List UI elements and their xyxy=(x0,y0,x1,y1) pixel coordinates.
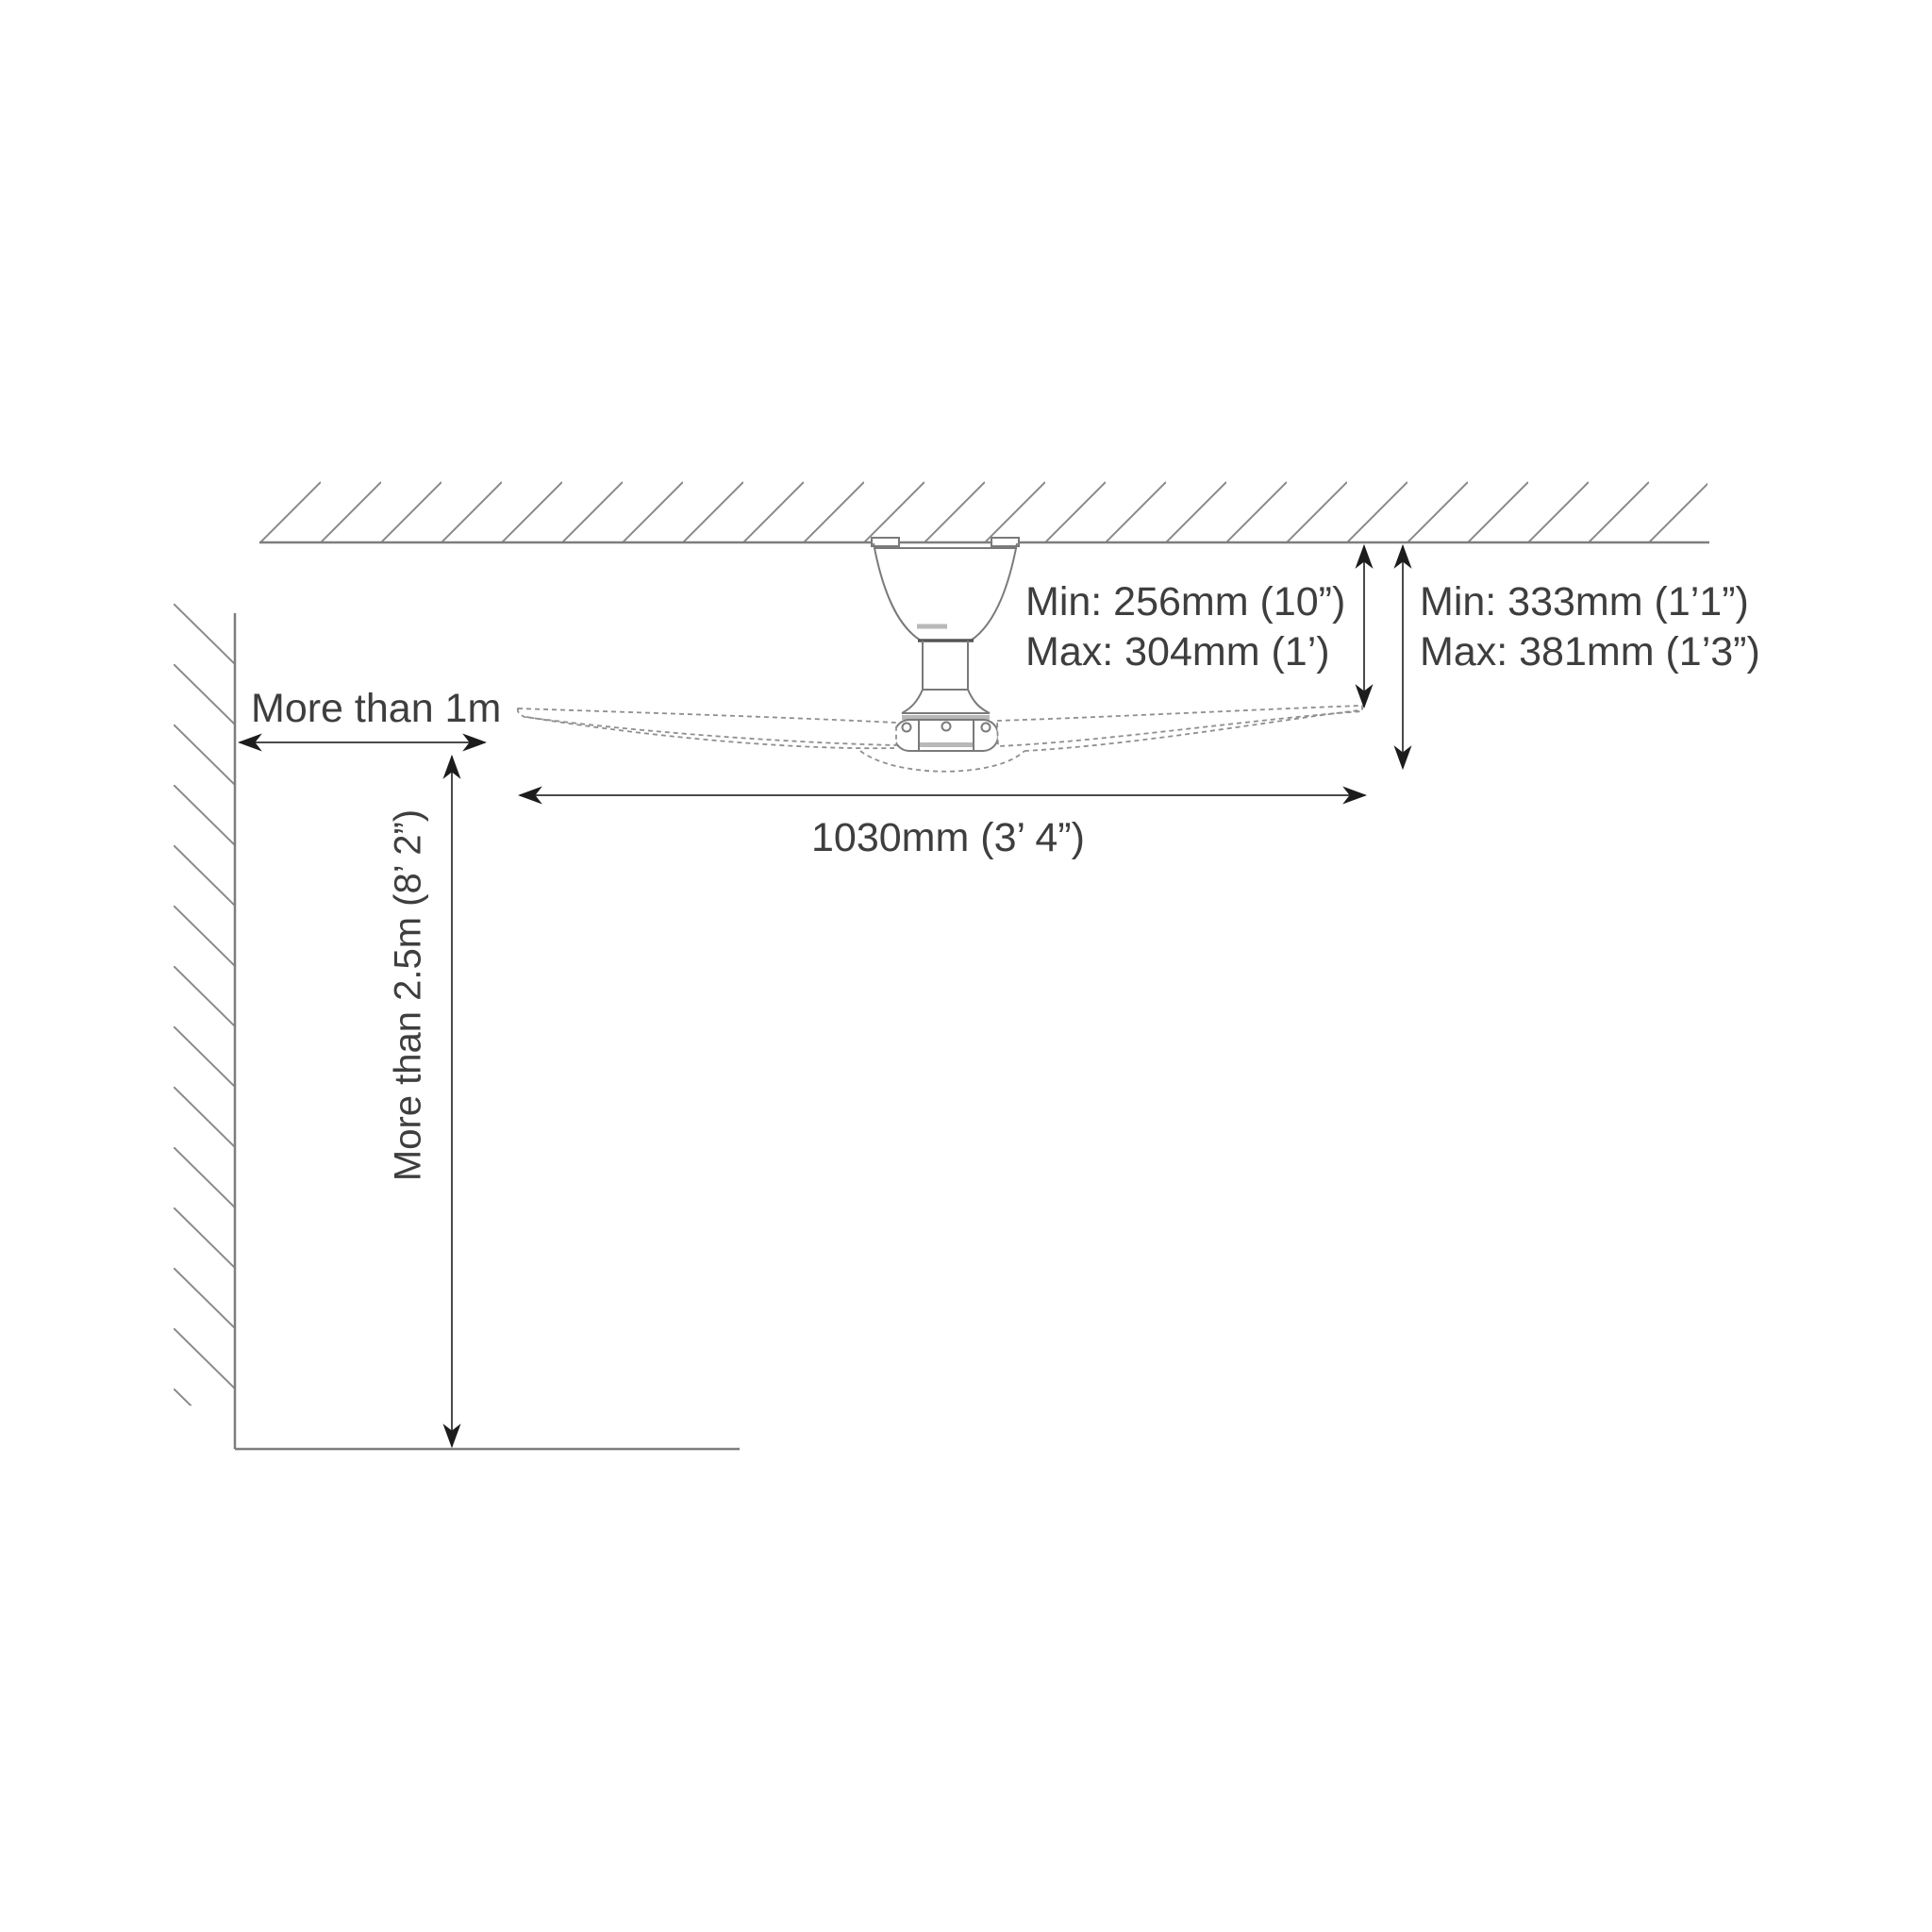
ceiling-hatching xyxy=(260,480,1707,542)
hub-band-bottom xyxy=(920,742,973,747)
wall xyxy=(174,604,235,1449)
clearance-diagram: More than 1m More than 2.5m (8’ 2”) 1030… xyxy=(0,0,1932,1932)
body-to-ceiling-min: Min: 333mm (1’1”) xyxy=(1420,577,1760,627)
ceiling xyxy=(259,480,1709,542)
blade-to-ceiling-min: Min: 256mm (10”) xyxy=(1025,577,1345,627)
mount-tab-right xyxy=(991,538,1019,546)
fan-downrod xyxy=(922,641,969,690)
diagram-drawing xyxy=(0,0,1932,1932)
blade-to-ceiling-label: Min: 256mm (10”) Max: 304mm (1’) xyxy=(1025,577,1345,677)
wall-hatching xyxy=(174,604,235,1406)
fan-blade-right xyxy=(997,706,1362,746)
blade-to-ceiling-max: Max: 304mm (1’) xyxy=(1025,627,1345,677)
body-to-ceiling-max: Max: 381mm (1’3”) xyxy=(1420,627,1760,677)
floor-clearance-label: More than 2.5m (8’ 2”) xyxy=(388,809,430,1181)
wall-clearance-label: More than 1m xyxy=(251,686,501,732)
fan-width-label: 1030mm (3’ 4”) xyxy=(811,815,1085,861)
hub-bottom-cap xyxy=(860,751,1024,772)
mount-tab-left xyxy=(872,538,899,546)
fan-canopy xyxy=(872,538,1019,641)
body-to-ceiling-label: Min: 333mm (1’1”) Max: 381mm (1’3”) xyxy=(1420,577,1760,677)
